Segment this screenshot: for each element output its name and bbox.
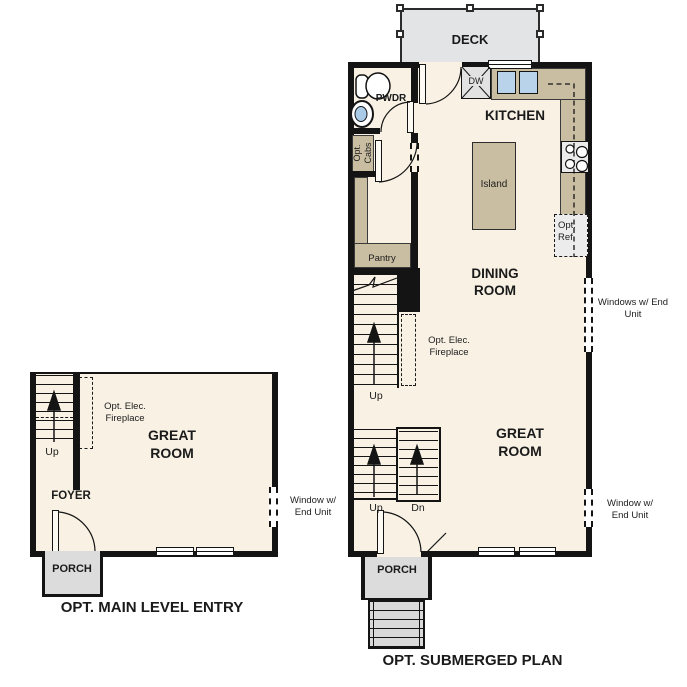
stairs-up-main [354, 274, 397, 388]
dw-label: DW [463, 76, 489, 86]
pwdr-wall-right [411, 66, 418, 103]
hall-wall [411, 133, 418, 143]
deck-post [536, 30, 544, 38]
foyer-label: FOYER [44, 489, 98, 503]
great-room-label-left: GREAT ROOM [130, 426, 214, 462]
stairs-dashed-tread [36, 417, 73, 418]
windows-end-unit-upper [584, 278, 593, 352]
up-left-label: Up [40, 446, 64, 458]
deck-door-leaf [419, 64, 426, 104]
hall-cased-opening [410, 143, 419, 172]
exterior-steps-rail-left [373, 599, 374, 649]
deck-post [466, 4, 474, 12]
cabs-wall-stub [348, 171, 376, 177]
optional-fireplace-left [79, 377, 93, 449]
pantry-wall-right [411, 172, 418, 268]
deck-post [396, 30, 404, 38]
window-end-unit-note-left: Window w/ End Unit [282, 495, 344, 519]
up-main-label: Up [364, 390, 388, 402]
fireplace-note-right: Opt. Elec. Fireplace [420, 335, 478, 359]
floorplan-canvas: DECK PWDR DW KITCHEN Island Opt. Cabs Pa… [0, 0, 687, 687]
main-level-entry-title: OPT. MAIN LEVEL ENTRY [28, 599, 276, 618]
deck-label: DECK [435, 32, 505, 48]
stair-edge-line [397, 312, 399, 388]
front-door-leaf-left [52, 510, 59, 554]
range-stove [561, 141, 589, 173]
pwdr-wall-bottom [350, 128, 380, 134]
window-end-unit-left-plan [269, 487, 278, 527]
pantry-label: Pantry [352, 253, 412, 264]
great-room-window-1 [478, 547, 515, 556]
deck-post [536, 4, 544, 12]
left-plan-window-2 [196, 547, 234, 556]
pantry-door-leaf [375, 140, 382, 182]
island-label: Island [470, 179, 518, 190]
dining-room-label: DINING ROOM [453, 265, 537, 299]
submerged-plan-title: OPT. SUBMERGED PLAN [350, 652, 595, 671]
window-end-unit-note-right: Window w/ End Unit [598, 498, 662, 522]
kitchen-label: KITCHEN [465, 108, 565, 125]
sink-basin-right [519, 71, 538, 94]
sink-basin-left [497, 71, 516, 94]
window-end-unit-lower [584, 489, 593, 527]
up-entry-label: Up [364, 502, 388, 514]
dn-entry-label: Dn [406, 502, 430, 514]
pwdr-label: PWDR [370, 93, 412, 106]
porch-label-right: PORCH [366, 564, 428, 578]
kitchen-window [488, 60, 532, 69]
optional-fireplace [401, 314, 416, 386]
stair-wall-stub [397, 274, 420, 312]
left-plan-window-1 [156, 547, 194, 556]
entry-stairs-up [354, 429, 396, 499]
pantry-shelf-left [354, 177, 368, 245]
opt-cabs-label: Opt. Cabs [352, 136, 374, 170]
exterior-steps [368, 599, 425, 649]
windows-end-unit-note: Windows w/ End Unit [597, 297, 669, 321]
entry-stairs-dn [399, 431, 438, 497]
porch-label-left: PORCH [44, 563, 100, 577]
pwdr-door-leaf [407, 101, 414, 133]
front-door-leaf [377, 510, 384, 554]
exterior-steps-rail-right [419, 599, 420, 649]
fireplace-note-left: Opt. Elec. Fireplace [96, 401, 154, 425]
great-room-window-2 [519, 547, 556, 556]
deck-post [396, 4, 404, 12]
stairs-up-left-plan [36, 375, 73, 445]
great-room-label-right: GREAT ROOM [478, 424, 562, 460]
entry-stairs-divider [354, 498, 396, 500]
opt-ref-label: Opt. Ref [558, 220, 584, 244]
